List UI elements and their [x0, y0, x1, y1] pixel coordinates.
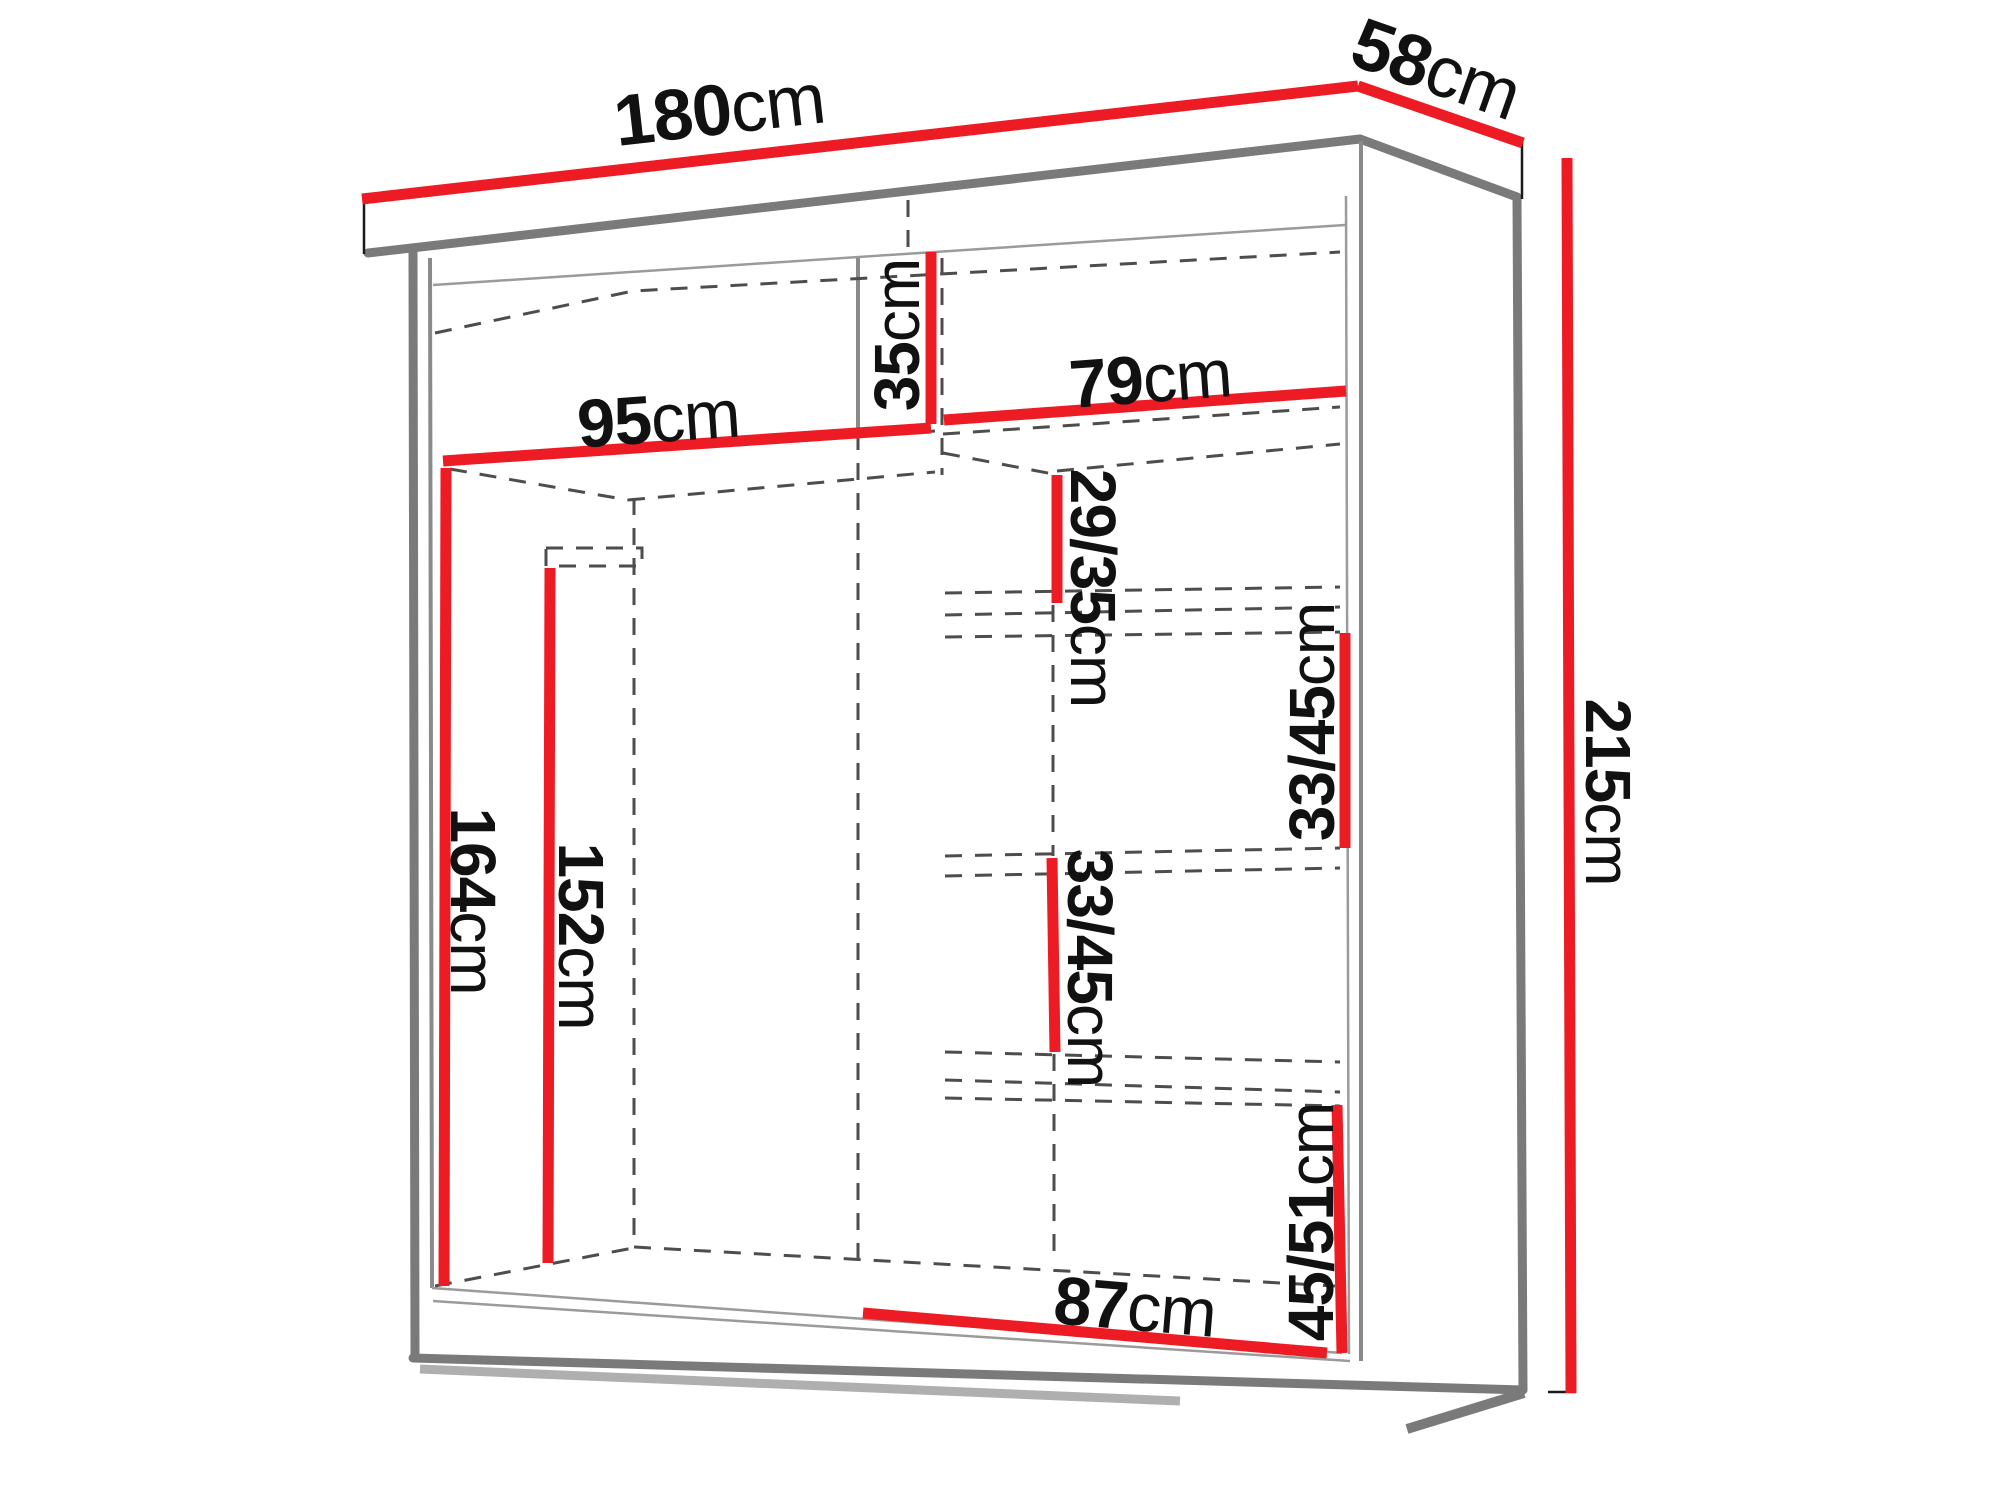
floor-back-edge	[634, 1247, 1335, 1286]
shelf-c-line-2	[945, 868, 1340, 876]
wardrobe-dimension-diagram: 180cm 58cm 215cm 95cm 35cm 79cm 29/35cm …	[0, 0, 2000, 1500]
right-outer-edge	[1517, 197, 1523, 1390]
diagram-canvas: 180cm 58cm 215cm 95cm 35cm 79cm 29/35cm …	[0, 0, 2000, 1500]
dimension-labels: 180cm 58cm 215cm 95cm 35cm 79cm 29/35cm …	[437, 3, 1644, 1352]
shelf-a-line-2	[943, 453, 1053, 474]
left-outer-edge	[413, 252, 415, 1358]
label-29-35cm: 29/35cm	[1057, 469, 1129, 707]
shelf-a-line-3	[1057, 444, 1340, 471]
shelf-d-line-2	[945, 1080, 1340, 1092]
floor-left-depth-line	[435, 1248, 633, 1286]
top-board-front-edge	[368, 139, 1517, 253]
hanging-rail	[546, 548, 642, 566]
dim-line-215	[1567, 158, 1571, 1393]
label-164cm: 164cm	[437, 807, 509, 994]
left-section-depth-line	[450, 469, 628, 500]
left-inner-edge	[430, 258, 432, 1288]
label-45-51cm: 45/51cm	[1275, 1103, 1347, 1341]
shelf-c-line-1	[945, 848, 1340, 856]
shelf-b-line-1	[945, 587, 1340, 593]
floor-shadow-right	[1407, 1393, 1524, 1429]
label-33-45cm-center: 33/45cm	[1054, 849, 1126, 1087]
label-33-45cm-right: 33/45cm	[1276, 603, 1348, 841]
dim-line-180	[362, 86, 1358, 199]
shelf-d-line-1	[945, 1052, 1340, 1062]
label-35cm: 35cm	[861, 259, 933, 412]
label-215cm: 215cm	[1572, 698, 1644, 885]
label-152cm: 152cm	[545, 842, 617, 1029]
left-section-back-shelf-edge	[628, 472, 935, 500]
label-87cm: 87cm	[1051, 1262, 1219, 1352]
label-95cm: 95cm	[575, 375, 742, 462]
dimension-lines	[362, 86, 1571, 1393]
label-79cm: 79cm	[1067, 335, 1234, 423]
